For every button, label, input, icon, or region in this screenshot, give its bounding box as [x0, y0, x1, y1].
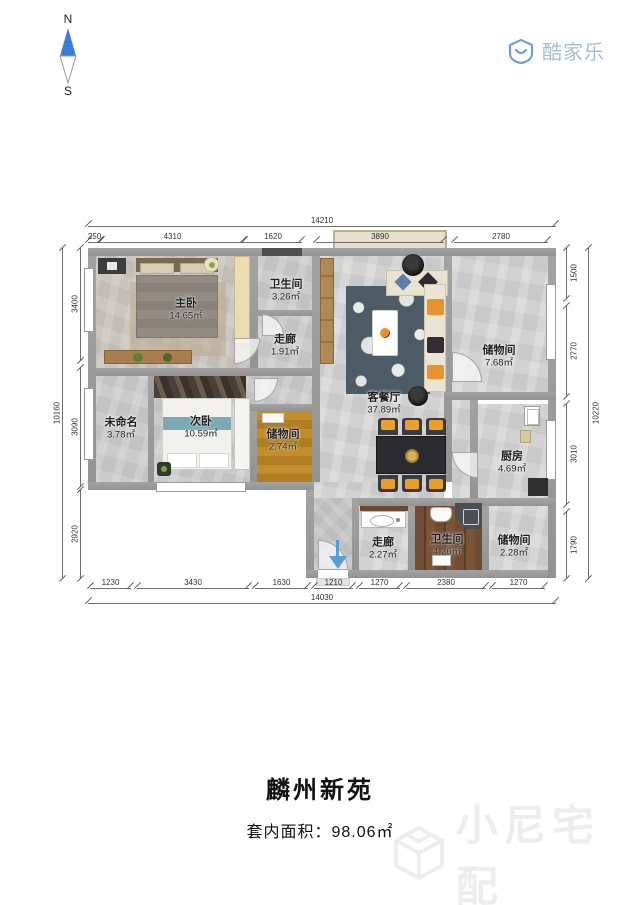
window-second-bedroom — [156, 482, 246, 492]
side-table-round — [402, 254, 424, 276]
dining-chair — [378, 418, 398, 435]
sofa — [424, 284, 446, 392]
master-tv-unit — [98, 258, 126, 274]
room-label-bathroom-top: 卫生间3.26㎡ — [270, 278, 303, 305]
plant-leaf — [209, 262, 215, 268]
room-label-second-bedroom: 次卧10.59㎡ — [184, 415, 217, 442]
dim-right-segment: 3010 — [566, 404, 567, 504]
desk-plant — [133, 353, 143, 362]
master-tv-screen — [107, 262, 117, 270]
wall — [408, 506, 415, 570]
vanity-counter — [361, 511, 406, 528]
area-label: 套内面积： — [246, 824, 331, 841]
room-label-kitchen: 厨房4.69㎡ — [498, 450, 526, 477]
room-label-unnamed: 未命名3.78㎡ — [105, 416, 138, 443]
entry-arrow-icon — [329, 556, 347, 569]
toilet — [430, 507, 452, 522]
second-bedroom-headboard-wall — [154, 376, 246, 398]
dining-table — [376, 436, 446, 474]
tv-cabinet — [320, 258, 334, 364]
vent-bathroom-top — [262, 248, 302, 256]
second-bed-pillow — [199, 453, 229, 468]
dim-right-total: 10220 — [588, 248, 589, 578]
dining-chair — [402, 475, 422, 492]
coffee-table — [372, 310, 398, 356]
chair-seat — [381, 420, 395, 430]
chair-seat — [405, 420, 419, 430]
wall — [250, 404, 312, 411]
master-desk — [104, 350, 192, 364]
dim-bottom-segment: 3430 — [137, 588, 249, 589]
wall — [306, 490, 314, 578]
room-label-storage-right: 储物间7.68㎡ — [483, 344, 516, 371]
dining-centerpiece — [405, 449, 419, 463]
area-value: 98.06㎡ — [331, 824, 393, 841]
watermark-text: 小尼宅配 — [456, 792, 640, 905]
window-storage-right — [546, 284, 556, 360]
wall — [444, 392, 556, 400]
second-bedroom-plant — [157, 462, 171, 476]
chair-seat — [405, 479, 419, 489]
dim-left-segment: 3400 — [80, 248, 81, 360]
room-label-living-dining: 客餐厅37.89㎡ — [367, 391, 400, 418]
brand-logo: 酷家乐 — [508, 36, 605, 65]
wall — [96, 368, 312, 376]
brand-name: 酷家乐 — [542, 36, 605, 65]
wall — [88, 248, 556, 256]
sink-basin — [527, 409, 539, 425]
dining-chair — [402, 418, 422, 435]
dim-left-segment: 3090 — [80, 368, 81, 486]
dim-right-segment: 2770 — [566, 306, 567, 396]
dim-top-segment: 1620 — [244, 242, 302, 243]
window-unnamed — [84, 388, 94, 460]
cube-logo-icon — [392, 824, 446, 882]
room-label-storage-middle: 储物间2.74㎡ — [267, 428, 300, 455]
room-label-hallway-bottom: 走廊2.27㎡ — [369, 536, 397, 563]
floor-plan-page: N S 酷家乐 — [0, 0, 640, 905]
dim-top-segment: 4310 — [101, 242, 244, 243]
wall — [250, 411, 257, 482]
second-bedroom-wardrobe — [234, 398, 250, 470]
room-label-bathroom-bottom: 卫生间4.26㎡ — [431, 533, 464, 560]
dim-right-segment: 1790 — [566, 512, 567, 578]
dining-chair — [426, 475, 446, 492]
wall — [482, 506, 489, 570]
kujiale-shield-icon — [508, 38, 534, 64]
wall — [352, 498, 359, 570]
compass-north-label: N — [48, 12, 88, 26]
side-table-round — [408, 386, 428, 406]
sofa-pillow — [395, 274, 412, 291]
dim-top-total: 14210 — [88, 226, 556, 227]
room-label-master-bedroom: 主卧14.65㎡ — [169, 297, 202, 324]
kitchen-item — [520, 430, 531, 443]
fruit-bowl — [380, 328, 390, 338]
dim-right-segment: 1500 — [566, 248, 567, 298]
wash-basin — [370, 515, 394, 527]
dim-left-total: 10160 — [62, 248, 63, 578]
window-kitchen — [546, 420, 556, 480]
sofa-cushion-orange — [427, 299, 444, 315]
desk-plant — [163, 353, 172, 362]
dim-bottom-segment: 1230 — [90, 588, 131, 589]
chair-seat — [429, 479, 443, 489]
kitchen-counter — [528, 478, 548, 496]
compass-needle-icon — [48, 26, 88, 84]
dim-bottom-segment: 1270 — [492, 588, 545, 589]
compass: N S — [48, 12, 88, 98]
watermark: 小尼宅配 — [392, 792, 640, 905]
sofa-cushion-orange — [427, 365, 444, 379]
storage-middle-shelf — [262, 413, 284, 423]
room-label-storage-bottom: 储物间2.28㎡ — [498, 534, 531, 561]
wall — [312, 256, 320, 482]
master-bed-pillow — [140, 263, 174, 274]
dim-left-segment: 2920 — [80, 490, 81, 578]
window-master — [84, 268, 94, 332]
dining-chair — [378, 475, 398, 492]
dim-bottom-segment: 2380 — [406, 588, 486, 589]
dim-top-segment: 2780 — [454, 242, 548, 243]
chair-seat — [381, 479, 395, 489]
dim-top-segment: 3890 — [316, 242, 444, 243]
second-bed-pillow — [167, 453, 197, 468]
dim-bottom-total: 14030 — [88, 603, 556, 604]
kitchen-sink — [524, 406, 540, 426]
compass-south-label: S — [48, 84, 88, 98]
master-plant — [204, 257, 219, 272]
chair-seat — [429, 420, 443, 430]
dining-chair — [426, 418, 446, 435]
dim-bottom-segment: 1210 — [314, 588, 353, 589]
dim-bottom-segment: 1630 — [255, 588, 308, 589]
shower-tray — [463, 509, 479, 525]
faucet — [396, 518, 400, 522]
master-wardrobe — [234, 256, 250, 344]
sofa-cushion-black — [427, 337, 444, 353]
wall — [470, 400, 478, 498]
dim-bottom-segment: 1270 — [359, 588, 400, 589]
entry-door-opening — [318, 570, 348, 578]
plant-leaf — [161, 466, 167, 472]
floor-hall-right — [452, 400, 470, 498]
entry-arrow-stem — [336, 540, 339, 556]
room-label-hallway-top: 走廊1.91㎡ — [271, 333, 299, 360]
